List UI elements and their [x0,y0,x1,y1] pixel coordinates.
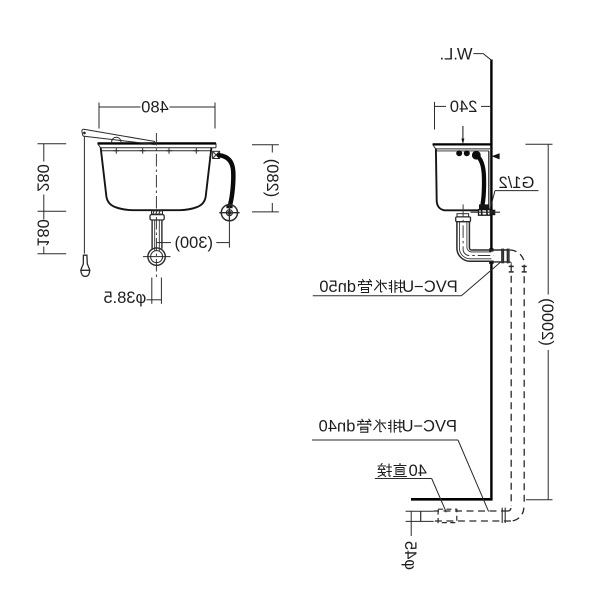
svg-text:dn40: dn40 [319,418,356,436]
svg-text:180: 180 [33,219,51,247]
svg-text:(280): (280) [263,159,281,198]
svg-text:240: 240 [450,98,478,116]
svg-text:40: 40 [409,462,427,480]
svg-text:(300): (300) [174,234,213,252]
svg-text:dn50: dn50 [319,278,356,296]
svg-text:PVC−U: PVC−U [402,418,457,436]
svg-text:280: 280 [33,164,51,192]
svg-text:φ38.5: φ38.5 [103,289,146,307]
svg-text:W.L.: W.L. [439,45,472,63]
svg-text:φ45: φ45 [401,541,419,570]
svg-text:(2000): (2000) [538,298,556,346]
svg-text:G1/2: G1/2 [499,174,535,192]
svg-text:PVC−U: PVC−U [402,278,457,296]
svg-text:480: 480 [141,99,169,117]
